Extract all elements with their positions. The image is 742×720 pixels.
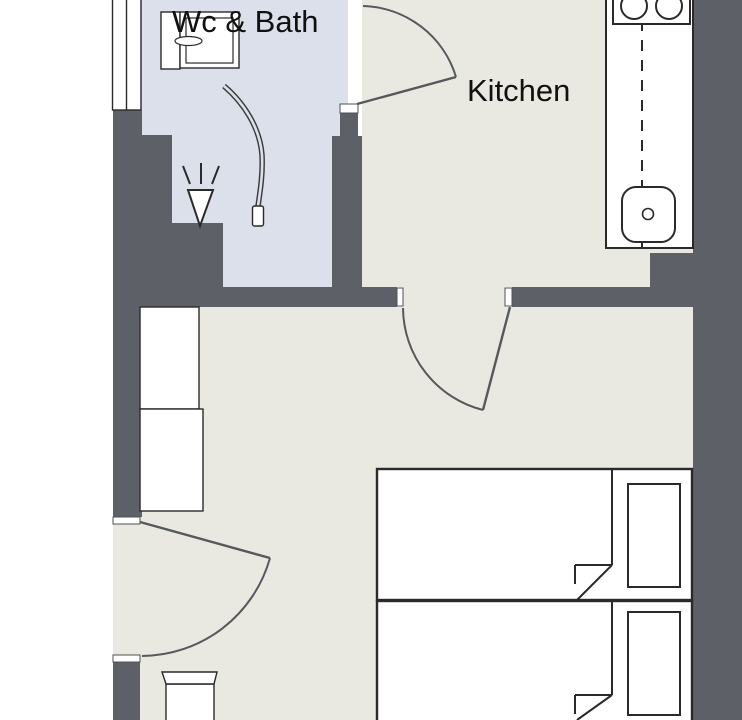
floor-plan-drawing: [0, 0, 742, 720]
bed-2: [377, 601, 692, 720]
chair: [162, 672, 217, 720]
bathroom-door-jamb: [340, 104, 358, 113]
kitchen-door-jamb-right: [505, 288, 512, 306]
entrance-door-threshold: [113, 524, 140, 656]
pillow: [628, 484, 680, 587]
bathroom-label: Wc & Bath: [172, 5, 318, 39]
bed-1: [377, 469, 692, 600]
window: [113, 0, 142, 110]
wardrobe: [140, 307, 203, 511]
sink-icon: [622, 187, 675, 242]
bathroom-door-threshold: [348, 0, 362, 104]
kitchen-label: Kitchen: [467, 74, 570, 108]
floor-plan: Wc & Bath Kitchen: [0, 0, 742, 720]
pillow: [628, 612, 680, 715]
entrance-door-jamb-top: [113, 517, 140, 524]
entrance-door-jamb-bottom: [113, 655, 140, 662]
kitchen-counter: [606, 0, 693, 248]
stove-icon: [613, 0, 690, 24]
kitchen-door-jamb-left: [397, 288, 403, 306]
kitchen-door-threshold: [403, 287, 505, 307]
